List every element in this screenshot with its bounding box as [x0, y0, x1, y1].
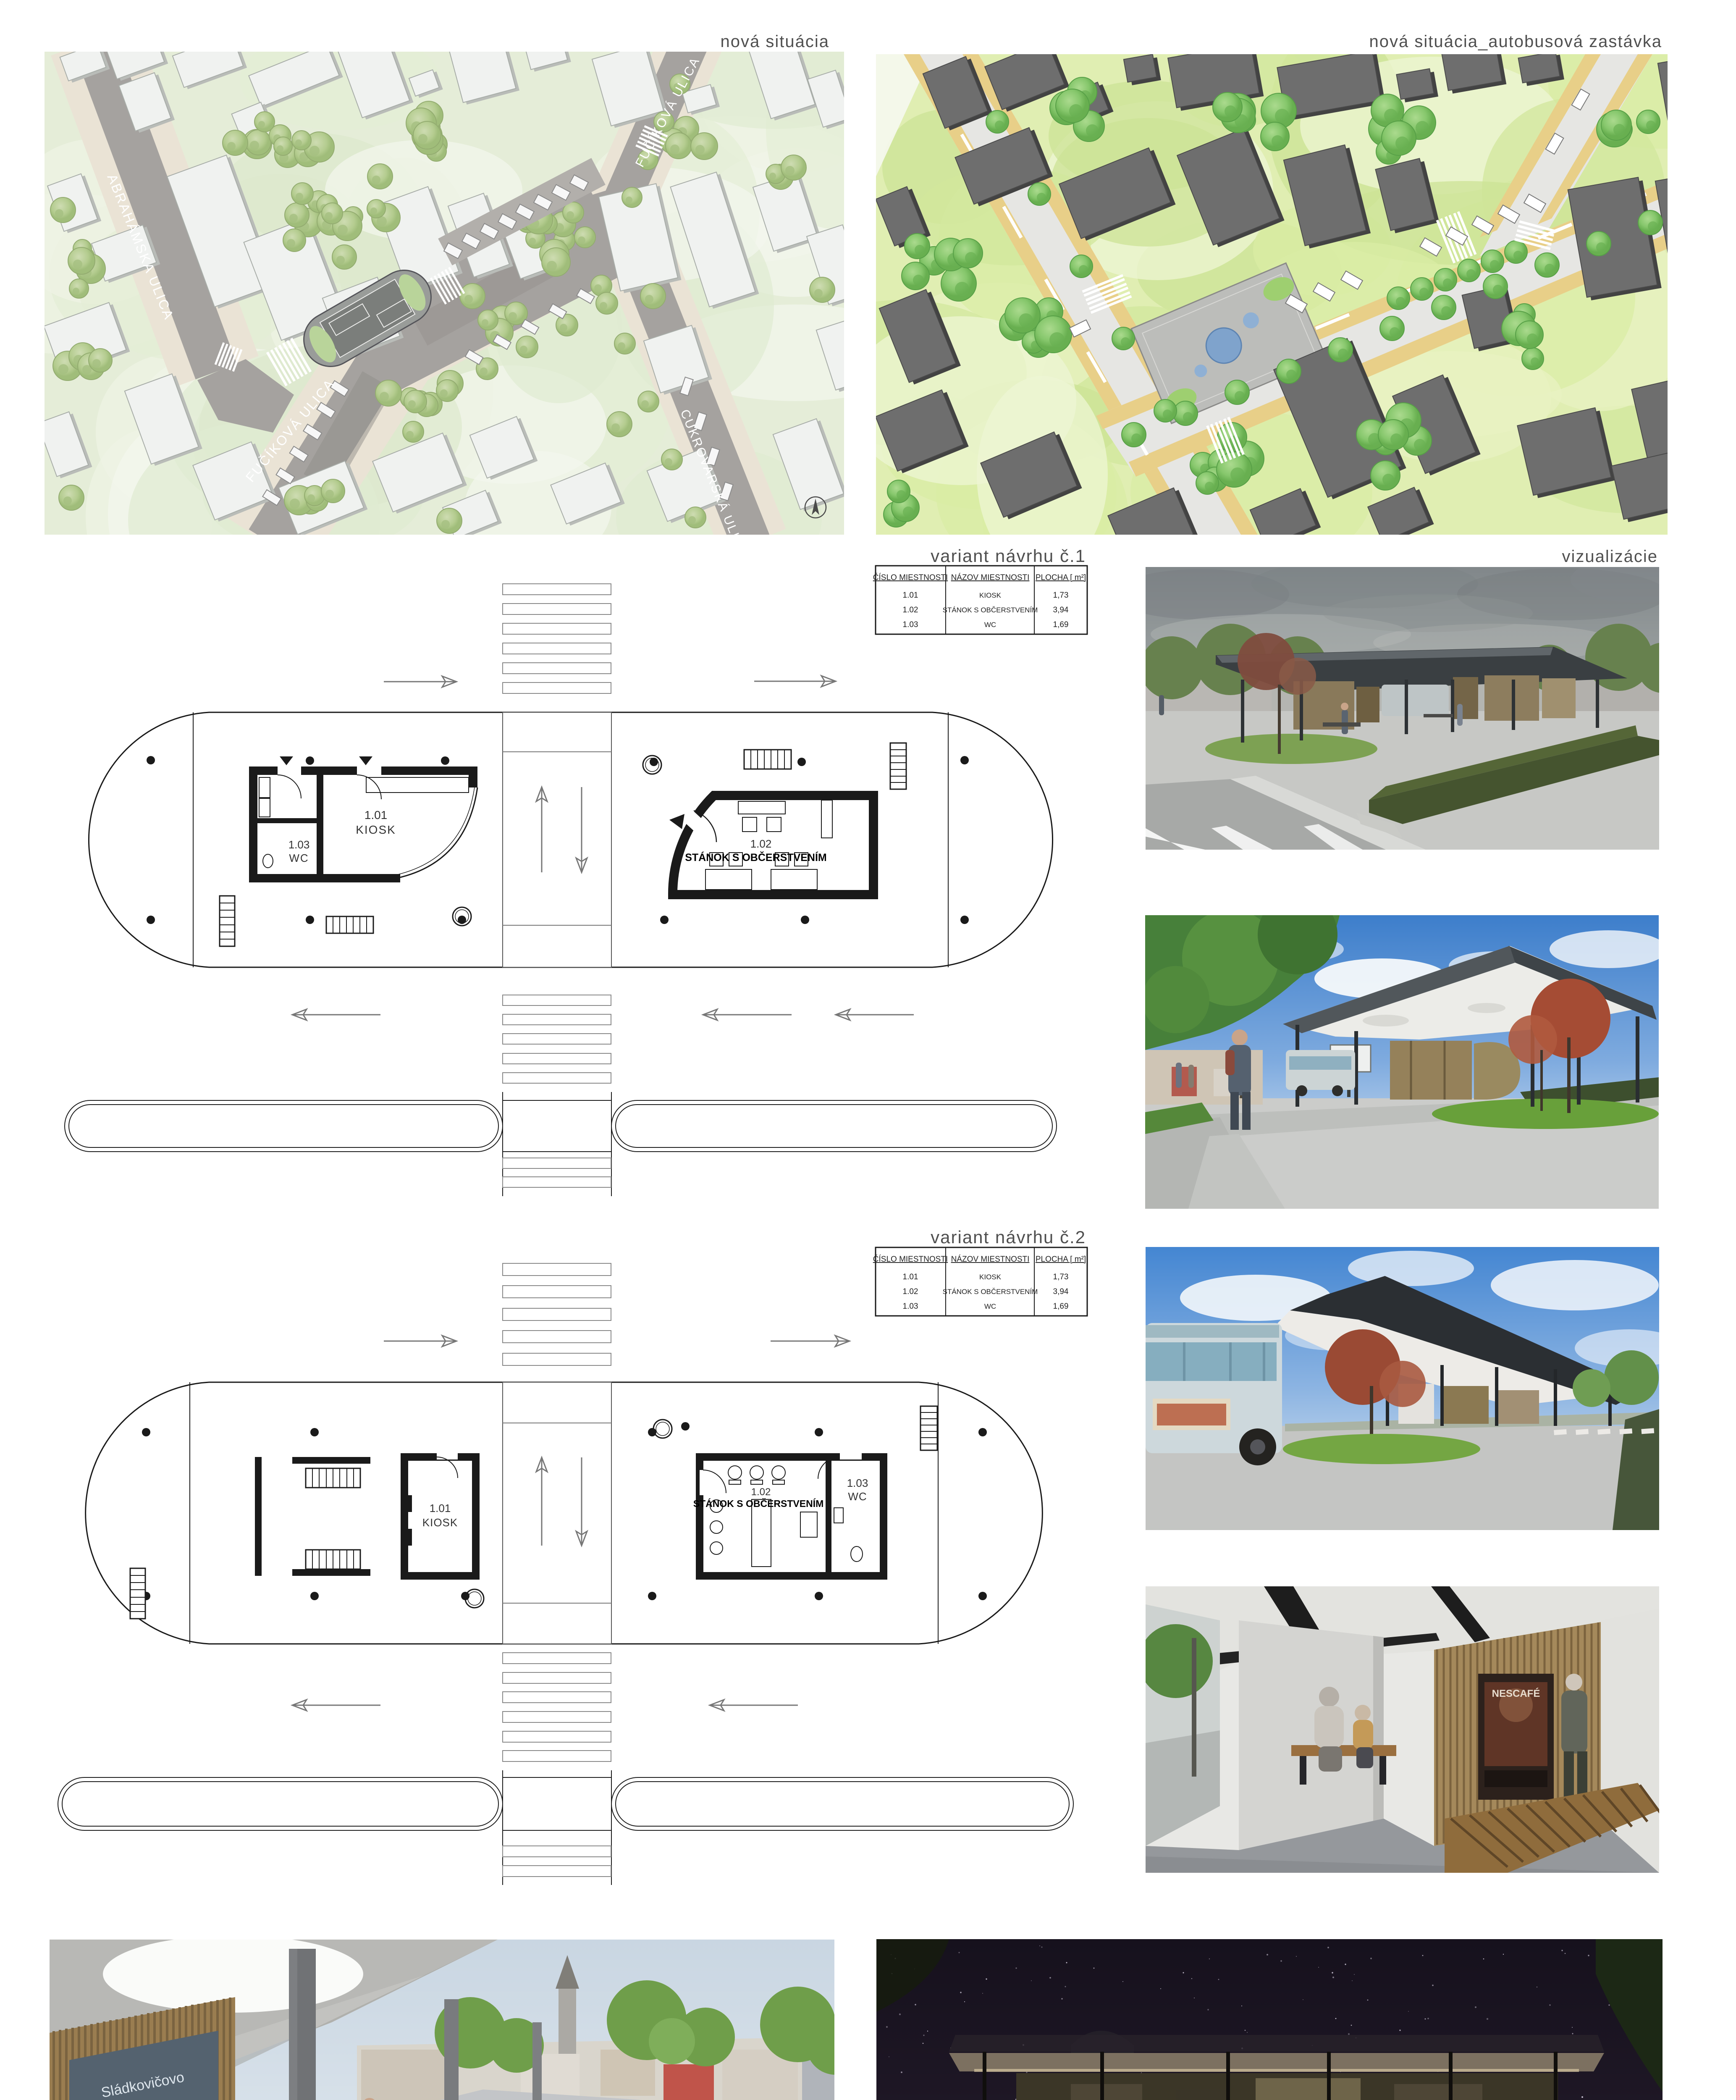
- svg-text:1,73: 1,73: [1053, 591, 1069, 600]
- svg-text:WC: WC: [984, 621, 996, 629]
- svg-text:1.01: 1.01: [903, 591, 918, 600]
- svg-text:1.02: 1.02: [750, 837, 772, 850]
- svg-text:1.03: 1.03: [903, 620, 918, 629]
- svg-text:1.01: 1.01: [365, 808, 388, 822]
- svg-text:KIOSK: KIOSK: [422, 1516, 458, 1529]
- svg-text:1,73: 1,73: [1053, 1273, 1069, 1281]
- svg-text:WC: WC: [848, 1490, 867, 1503]
- svg-text:nová situácia: nová situácia: [721, 32, 829, 51]
- svg-text:variant návrhu č.1: variant návrhu č.1: [931, 546, 1086, 566]
- svg-text:3,94: 3,94: [1053, 1287, 1069, 1296]
- svg-text:1,69: 1,69: [1053, 620, 1069, 629]
- svg-text:1.01: 1.01: [903, 1273, 918, 1281]
- svg-text:1.02: 1.02: [903, 606, 918, 614]
- svg-text:1.03: 1.03: [288, 838, 310, 851]
- svg-text:ČÍSLO MIESTNOSTI: ČÍSLO MIESTNOSTI: [873, 1255, 948, 1264]
- svg-text:1.03: 1.03: [903, 1302, 918, 1311]
- svg-text:nová situácia_autobusová zastá: nová situácia_autobusová zastávka: [1369, 32, 1662, 51]
- svg-text:1.01: 1.01: [430, 1502, 451, 1515]
- svg-text:KIOSK: KIOSK: [356, 823, 396, 836]
- svg-text:NESCAFÉ: NESCAFÉ: [1492, 1688, 1540, 1699]
- svg-text:WC: WC: [984, 1302, 996, 1310]
- svg-text:STÁNOK S OBČERSTVENÍM: STÁNOK S OBČERSTVENÍM: [943, 606, 1038, 614]
- svg-text:STÁNOK S OBČERSTVENÍM: STÁNOK S OBČERSTVENÍM: [685, 851, 827, 864]
- svg-text:1.02: 1.02: [751, 1486, 771, 1498]
- svg-text:KIOSK: KIOSK: [979, 1273, 1002, 1281]
- svg-text:NÁZOV MIESTNOSTI: NÁZOV MIESTNOSTI: [951, 1255, 1030, 1264]
- svg-text:1.02: 1.02: [903, 1287, 918, 1296]
- svg-text:1.03: 1.03: [847, 1477, 868, 1489]
- svg-text:PLOCHA [ m²]: PLOCHA [ m²]: [1036, 573, 1086, 582]
- svg-text:PLOCHA [ m²]: PLOCHA [ m²]: [1036, 1255, 1086, 1264]
- svg-text:3,94: 3,94: [1053, 606, 1069, 614]
- svg-text:STÁNOK S OBČERSTVENÍM: STÁNOK S OBČERSTVENÍM: [693, 1498, 824, 1509]
- svg-text:1,69: 1,69: [1053, 1302, 1069, 1311]
- svg-text:STÁNOK S OBČERSTVENÍM: STÁNOK S OBČERSTVENÍM: [943, 1288, 1038, 1296]
- svg-text:WC: WC: [289, 852, 309, 864]
- svg-text:NÁZOV MIESTNOSTI: NÁZOV MIESTNOSTI: [951, 573, 1030, 582]
- svg-text:KIOSK: KIOSK: [979, 591, 1002, 599]
- svg-text:variant návrhu č.2: variant návrhu č.2: [931, 1227, 1086, 1247]
- svg-text:vizualizácie: vizualizácie: [1562, 547, 1658, 566]
- svg-text:ČÍSLO MIESTNOSTI: ČÍSLO MIESTNOSTI: [873, 573, 948, 582]
